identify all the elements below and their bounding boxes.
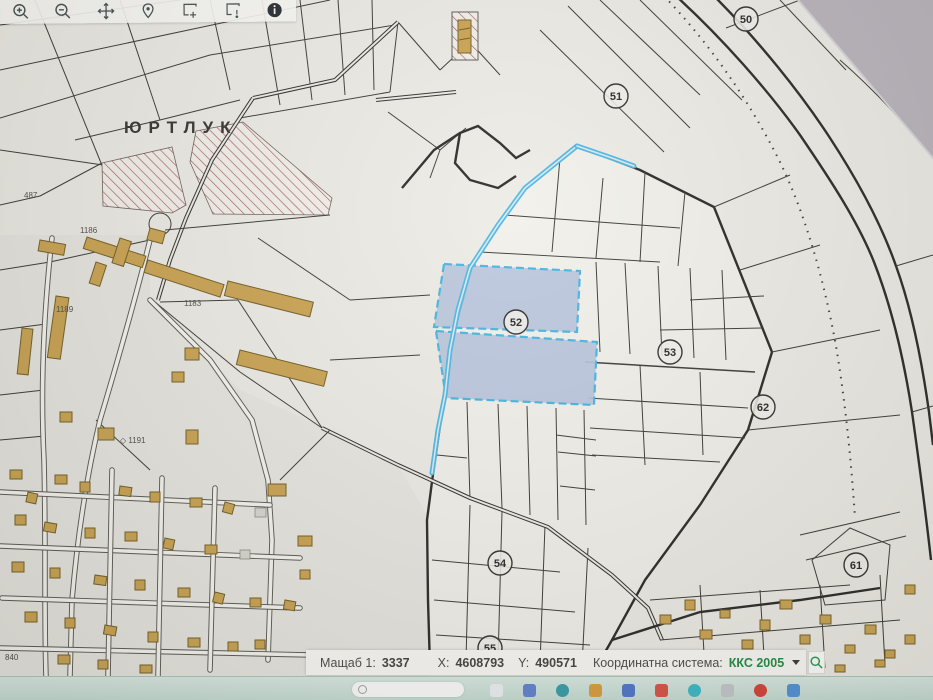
crs-dropdown-caret[interactable]	[792, 660, 800, 665]
parcel-label: 487	[24, 191, 38, 200]
taskbar-search[interactable]	[352, 682, 464, 697]
parcel-marker-53[interactable]: 53	[658, 340, 682, 364]
svg-text:61: 61	[850, 560, 862, 572]
scale-value: 3337	[382, 656, 410, 670]
area-label: ЮРТЛУК	[124, 118, 238, 137]
building-hatched-top	[452, 12, 478, 60]
app-icon-5[interactable]	[622, 684, 635, 697]
svg-text:52: 52	[510, 317, 522, 329]
map-toolbar	[0, 0, 296, 24]
zoom-out-icon[interactable]	[52, 0, 74, 22]
app-icon-4[interactable]	[589, 684, 602, 697]
svg-text:54: 54	[494, 558, 507, 570]
parcel-marker-50[interactable]: 50	[734, 7, 758, 31]
select-area-icon[interactable]	[179, 0, 201, 21]
app-icon-1[interactable]	[490, 684, 503, 697]
parcel-marker-62[interactable]: 62	[751, 395, 775, 419]
pan-icon[interactable]	[95, 0, 117, 22]
parcel-label: 1189	[56, 305, 74, 314]
svg-text:62: 62	[757, 402, 769, 414]
parcel-label: 840	[5, 653, 19, 662]
parcel-marker-61[interactable]: 61	[844, 553, 868, 577]
parcel-label: ◇ 1191	[120, 436, 146, 445]
app-icon-3[interactable]	[556, 684, 569, 697]
info-icon[interactable]	[264, 0, 286, 21]
x-label: X:	[438, 656, 450, 670]
app-icon-6[interactable]	[655, 684, 668, 697]
crs-label: Координатна система:	[593, 656, 723, 670]
location-pin-icon[interactable]	[137, 0, 159, 22]
windows-taskbar	[0, 676, 933, 700]
svg-text:50: 50	[740, 14, 752, 26]
parcel-label: 1183	[184, 299, 202, 308]
parcel-marker-51[interactable]: 51	[604, 84, 628, 108]
app-icon-2[interactable]	[523, 684, 536, 697]
y-value: 490571	[535, 656, 577, 670]
map-status-bar: Мащаб 1: 3337 X: 4608793 Y: 490571 Коорд…	[306, 650, 806, 675]
parcel-marker-54[interactable]: 54	[488, 551, 512, 575]
search-button[interactable]	[808, 651, 825, 674]
parcel-marker-52[interactable]: 52	[504, 310, 528, 334]
search-icon	[809, 655, 824, 670]
y-label: Y:	[518, 656, 529, 670]
app-icon-9[interactable]	[754, 684, 767, 697]
search-icon	[358, 685, 367, 694]
zoom-in-icon[interactable]	[10, 1, 32, 23]
scale-label: Мащаб 1:	[320, 656, 376, 670]
parcel-label: 1186	[80, 226, 98, 235]
svg-text:53: 53	[664, 347, 676, 359]
area-info-icon[interactable]	[222, 0, 244, 21]
crs-value[interactable]: ККС 2005	[729, 656, 784, 670]
app-icon-7[interactable]	[688, 684, 701, 697]
cadastral-map[interactable]: ЮРТЛУК 487 1186 1183 1189 ◇ 1191 840 50 …	[0, 0, 933, 676]
map-canvas[interactable]: ЮРТЛУК 487 1186 1183 1189 ◇ 1191 840 50 …	[0, 0, 933, 700]
svg-text:51: 51	[610, 91, 622, 103]
app-icon-8[interactable]	[721, 684, 734, 697]
x-value: 4608793	[455, 656, 504, 670]
app-icon-10[interactable]	[787, 684, 800, 697]
screen: ЮРТЛУК 487 1186 1183 1189 ◇ 1191 840 50 …	[0, 0, 933, 700]
